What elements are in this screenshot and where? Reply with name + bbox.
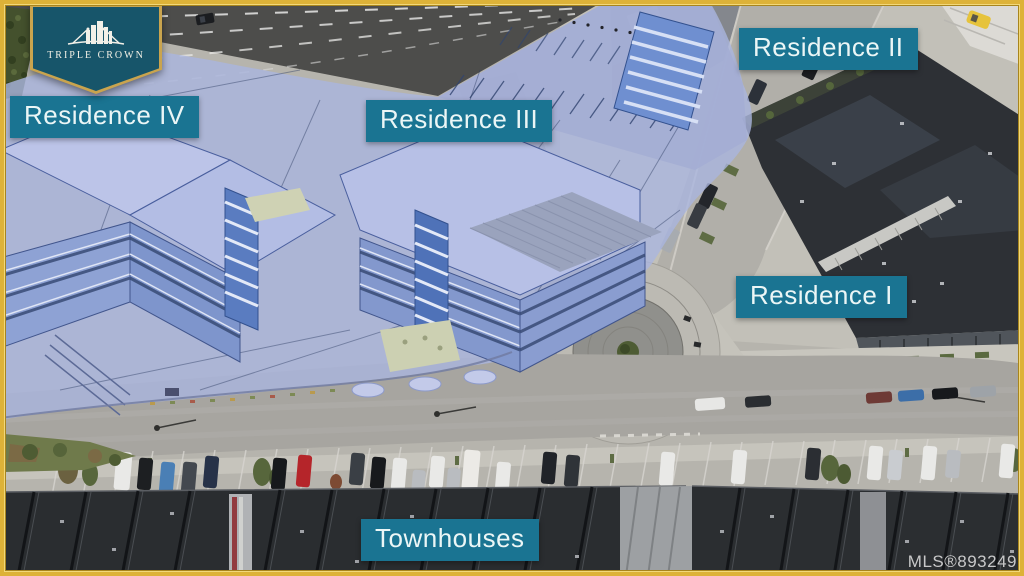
triple-crown-badge: TRIPLE CROWN — [30, 4, 162, 94]
badge-title: TRIPLE CROWN — [47, 50, 145, 61]
city-crown-icon — [61, 18, 131, 48]
site-plan-image: TRIPLE CROWN Residence IV Residence III … — [0, 0, 1024, 576]
badge-inner: TRIPLE CROWN — [33, 7, 159, 91]
label-residence-iv: Residence IV — [10, 96, 199, 138]
label-residence-iii: Residence III — [366, 100, 552, 142]
mls-watermark: MLS®893249 — [908, 552, 1017, 572]
label-townhouses: Townhouses — [361, 519, 539, 561]
label-residence-ii: Residence II — [739, 28, 918, 70]
label-residence-i: Residence I — [736, 276, 907, 318]
